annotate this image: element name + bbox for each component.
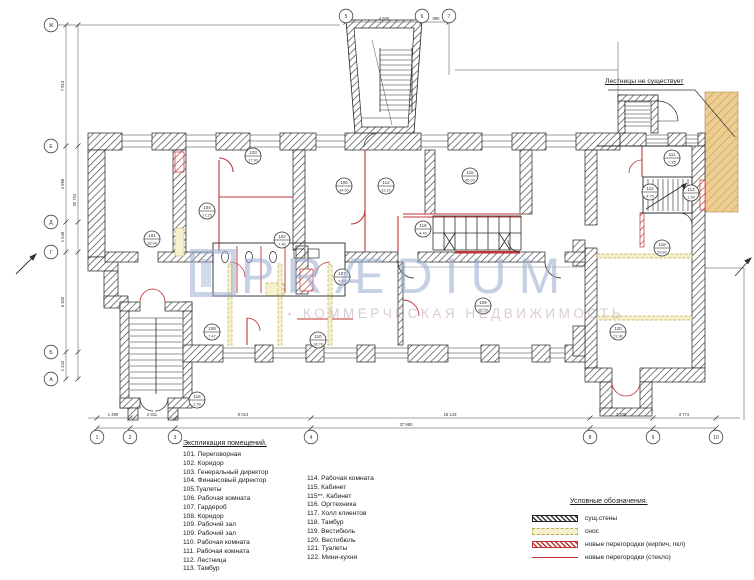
room-stamp-119: 11953.82 [654,240,670,256]
svg-text:102: 102 [278,234,286,239]
explication-title: Экспликация помещений. [183,440,443,447]
axis-bubble: 2 [123,430,137,444]
legend-swatch-new_glass [532,557,578,558]
legend-label: сущ.стены [585,515,617,522]
svg-text:2 911: 2 911 [147,412,158,417]
explication-item: 119. Вестибюль [307,528,374,537]
legend-swatch-existing [532,515,578,522]
svg-text:109: 109 [479,300,487,305]
explication-item: 109. Рабочий зал [183,530,307,539]
explication-item: 110. Рабочая комната [183,539,307,548]
room-stamp-107: 1077.10 [334,269,350,285]
axis-bubble: 10 [709,430,723,444]
room-stamp-115: 11545.20 [462,168,478,184]
svg-text:1 443: 1 443 [60,360,65,371]
svg-text:1 648: 1 648 [60,231,65,242]
svg-text:120: 120 [614,326,622,331]
svg-text:1.50: 1.50 [687,196,694,200]
explication-item: 106. Рабочая комната [183,495,307,504]
room-stamps: 10128.9410317.9010417.251027.4010634.501… [144,148,699,408]
svg-text:1: 1 [96,435,99,441]
explication-item: 117. Холл клиентов [307,510,374,519]
legend-title: Условные обозначения. [570,498,742,505]
svg-text:45.20: 45.20 [465,179,475,183]
svg-text:3 774: 3 774 [679,412,690,417]
svg-text:4 898: 4 898 [60,178,65,189]
svg-text:114: 114 [382,180,390,185]
svg-text:103: 103 [249,150,257,155]
svg-text:104: 104 [203,205,211,210]
svg-text:Г: Г [50,250,53,256]
axis-bubble: 7 [442,9,456,23]
legend-item: новые перегородки (кирпич, пкл) [532,538,742,551]
explication-item: 116. Оргтехника [307,501,374,510]
svg-text:118: 118 [193,394,201,399]
svg-text:17.25: 17.25 [202,214,212,218]
explication-item: 101. Переговорная [183,451,307,460]
room-stamp-110: 11018.78 [310,332,326,348]
legend-swatch-demolition [532,528,578,535]
svg-text:3 709: 3 709 [616,412,627,417]
svg-text:116: 116 [419,223,427,228]
axis-bubble: 1 [90,430,104,444]
svg-text:9 014: 9 014 [238,412,249,417]
svg-text:2: 2 [129,435,132,441]
svg-text:7.10: 7.10 [338,280,345,284]
room-stamp-113: 1131.50 [683,185,699,201]
explication-item: 111. Рабочая комната [183,548,307,557]
room-stamp-112: 1124.75 [642,184,658,200]
svg-text:1 490: 1 490 [108,412,119,417]
svg-text:5: 5 [345,14,348,20]
svg-text:33.10: 33.10 [381,189,391,193]
explication-item: 109. Рабочий зал [183,521,307,530]
stair-tower [346,20,422,133]
room-explication: Экспликация помещений. 101. Переговорная… [183,440,443,574]
svg-text:113: 113 [687,187,695,192]
room-stamp-116: 1164.40 [415,221,431,237]
svg-text:110: 110 [314,334,322,339]
svg-text:115: 115 [466,170,474,175]
svg-text:Ж: Ж [49,23,54,29]
legend-label: снос [585,528,599,535]
svg-text:7.40: 7.40 [278,243,285,247]
svg-text:1.99: 1.99 [193,403,200,407]
explication-item: 102. Коридор [183,460,307,469]
axis-bubble: А [44,372,58,386]
explication-item: 122. Мини-кухня [307,554,374,563]
explication-item: 105.Туалеты [183,486,307,495]
legend-item: снос [532,525,742,538]
axis-bubble: Г [44,245,58,259]
explication-item: 104. Финансовый директор [183,477,307,486]
symbols-legend: Условные обозначения. сущ.стенысносновые… [532,498,742,564]
legend-label: новые перегородки (стекло) [585,554,671,561]
svg-text:17.90: 17.90 [248,159,258,163]
room-stamp-101: 10128.94 [144,231,160,247]
svg-text:53.82: 53.82 [657,251,667,255]
svg-text:18.78: 18.78 [313,343,323,347]
stair-treads [130,48,688,394]
explication-column-1: 101. Переговорная102. Коридор103. Генера… [183,451,307,574]
room-stamp-111: 1117.85 [664,150,680,166]
axis-bubble: 5 [339,9,353,23]
svg-text:7.85: 7.85 [668,161,675,165]
svg-text:21.90: 21.90 [613,335,623,339]
svg-text:7.47: 7.47 [208,335,215,339]
legend-label: новые перегородки (кирпич, пкл) [585,541,685,548]
room-stamp-120: 12021.90 [610,324,626,340]
svg-text:92.29: 92.29 [478,309,488,313]
room-stamp-108: 1087.47 [204,324,220,340]
explication-item: 115. Кабинет [307,484,374,493]
north-arrow-right [735,258,751,276]
room-stamp-106: 10634.50 [336,178,352,194]
legend-swatch-new_brick [532,541,578,548]
svg-text:4.75: 4.75 [646,195,653,199]
svg-text:6: 6 [421,14,424,20]
svg-text:112: 112 [646,186,654,191]
svg-text:28.94: 28.94 [147,242,157,246]
svg-text:6 300: 6 300 [60,296,65,307]
explication-item: 120. Вестибюль [307,537,374,546]
svg-text:101: 101 [148,233,156,238]
svg-text:34.50: 34.50 [339,189,349,193]
axis-bubble: Ж [44,18,58,32]
explication-item: 114. Рабочая комната [307,475,374,484]
svg-text:890: 890 [433,16,441,21]
room-stamp-104: 10417.25 [199,203,215,219]
svg-text:4.40: 4.40 [419,232,426,236]
explication-item: 107. Гардероб [183,504,307,513]
axis-bubble: 6 [415,9,429,23]
room-stamp-102: 1027.40 [274,232,290,248]
axis-bubble: 8 [583,430,597,444]
stairs-note: Лестницы не существует [605,78,683,85]
svg-text:20 704: 20 704 [72,193,77,206]
svg-text:4 500: 4 500 [379,16,390,21]
explication-item: 113. Тамбур [183,565,307,574]
svg-text:111: 111 [669,152,676,157]
explication-item: 118. Тамбур [307,519,374,528]
svg-text:3: 3 [174,435,177,441]
svg-text:7: 7 [448,14,451,20]
svg-text:119: 119 [658,242,666,247]
svg-text:37 980: 37 980 [400,422,413,427]
svg-text:8: 8 [589,435,592,441]
room-stamp-118: 1181.99 [189,392,205,408]
axis-bubble: 3 [168,430,182,444]
axis-bubble: Е [44,139,58,153]
svg-text:106: 106 [340,180,348,185]
svg-text:10: 10 [713,435,719,441]
axis-bubble: Д [44,215,58,229]
tan-area [705,92,738,212]
north-arrow-left [16,254,36,274]
svg-text:9: 9 [652,435,655,441]
svg-text:7 913: 7 913 [60,80,65,91]
legend-item: новые перегородки (стекло) [532,551,742,564]
explication-item: 115**. Кабинет [307,493,374,502]
svg-text:18 143: 18 143 [444,412,457,417]
svg-text:108: 108 [208,326,216,331]
axis-bubble: Б [44,345,58,359]
explication-item: 121. Туалеты [307,545,374,554]
legend-item: сущ.стены [532,512,742,525]
svg-text:107: 107 [338,271,346,276]
room-stamp-103: 10317.90 [245,148,261,164]
room-stamp-109: 10992.29 [475,298,491,314]
explication-column-2: 114. Рабочая комната115. Кабинет115**. К… [307,475,374,574]
room-stamp-114: 11433.10 [378,178,394,194]
axis-bubble: 9 [646,430,660,444]
